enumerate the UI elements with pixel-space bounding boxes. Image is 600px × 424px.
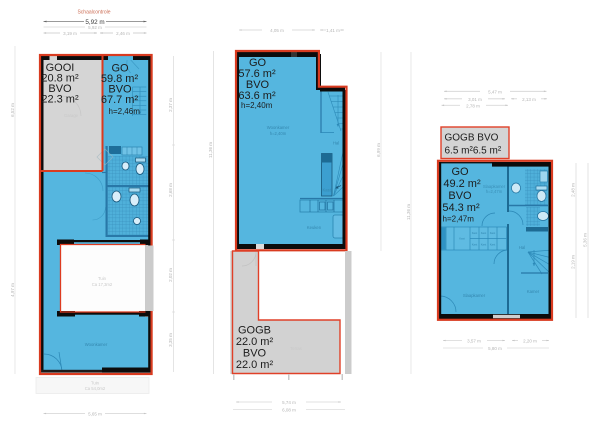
svg-text:Tuin: Tuin [91, 381, 100, 386]
svg-text:5,65 m: 5,65 m [88, 412, 102, 417]
svg-text:67.7 m²: 67.7 m² [101, 94, 139, 106]
svg-text:Ca 54,0m2: Ca 54,0m2 [85, 386, 106, 391]
svg-text:5,92 m: 5,92 m [88, 25, 102, 30]
svg-text:4,97 m: 4,97 m [10, 283, 15, 297]
svg-text:Schaalcontrole: Schaalcontrole [77, 10, 110, 16]
svg-text:5,47 m: 5,47 m [488, 89, 502, 94]
svg-text:22.0 m²: 22.0 m² [236, 336, 274, 348]
svg-text:GO: GO [451, 166, 469, 178]
svg-text:Garage: Garage [64, 113, 79, 118]
svg-text:Terras: Terras [290, 346, 302, 351]
svg-text:h=2,46m: h=2,46m [109, 107, 141, 116]
svg-text:Tuin: Tuin [98, 276, 107, 281]
svg-text:3,01 m: 3,01 m [468, 97, 482, 102]
svg-text:Slaapkamer: Slaapkamer [463, 293, 486, 298]
svg-text:2,48 m: 2,48 m [571, 183, 576, 197]
svg-text:5,80 m: 5,80 m [488, 346, 502, 351]
svg-text:Keuken: Keuken [307, 225, 322, 230]
svg-text:Kast: Kast [323, 188, 332, 193]
svg-text:2,13 m: 2,13 m [522, 97, 536, 102]
svg-text:Kast: Kast [472, 231, 478, 235]
svg-text:Kast: Kast [490, 243, 496, 247]
svg-text:Woonkamer: Woonkamer [85, 342, 108, 347]
svg-text:GOGB BVO: GOGB BVO [445, 133, 499, 144]
svg-text:h=2,40m: h=2,40m [241, 101, 273, 110]
svg-text:Ca 17,3m2: Ca 17,3m2 [92, 282, 113, 287]
svg-text:11,36 m: 11,36 m [406, 204, 411, 220]
svg-text:54.3 m²: 54.3 m² [442, 202, 480, 214]
svg-text:11,36 m: 11,36 m [208, 142, 213, 158]
svg-text:5,36 m: 5,36 m [583, 233, 588, 247]
svg-text:BVO: BVO [448, 190, 472, 202]
svg-text:Kast: Kast [481, 231, 487, 235]
svg-text:h=2,47m: h=2,47m [443, 215, 475, 224]
svg-text:2,37 m: 2,37 m [168, 98, 173, 112]
svg-text:6.5 m²6.5 m²: 6.5 m²6.5 m² [445, 146, 502, 157]
svg-text:6,08 m: 6,08 m [282, 408, 296, 413]
svg-text:3,19 m: 3,19 m [63, 31, 77, 36]
svg-text:49.2 m²: 49.2 m² [443, 178, 481, 190]
svg-text:6,52 m: 6,52 m [10, 103, 15, 117]
svg-text:3,57 m: 3,57 m [467, 339, 481, 344]
svg-text:Woonkamer: Woonkamer [267, 125, 290, 130]
svg-text:Kast: Kast [481, 243, 487, 247]
svg-text:Kast: Kast [490, 231, 496, 235]
svg-text:2,19 m: 2,19 m [571, 255, 576, 269]
svg-text:2,68 m: 2,68 m [168, 183, 173, 197]
svg-text:Kamer: Kamer [527, 289, 540, 294]
svg-text:Kast: Kast [459, 237, 465, 241]
svg-text:22.0 m²: 22.0 m² [236, 359, 274, 371]
svg-text:2,78 m: 2,78 m [466, 103, 480, 108]
svg-text:GOGB: GOGB [238, 325, 271, 337]
svg-text:h=2,40m: h=2,40m [270, 131, 287, 136]
svg-text:2,46 m: 2,46 m [116, 31, 130, 36]
svg-text:5,74 m: 5,74 m [282, 400, 296, 405]
svg-text:Hal: Hal [333, 141, 339, 146]
svg-text:22.3 m²: 22.3 m² [41, 94, 79, 106]
svg-text:BVO: BVO [243, 348, 267, 360]
svg-text:Hal: Hal [519, 245, 525, 250]
svg-text:4,05 m: 4,05 m [270, 28, 284, 33]
svg-text:h=2,47m: h=2,47m [486, 189, 503, 194]
svg-text:Kast: Kast [472, 243, 478, 247]
svg-text:6,99 m: 6,99 m [376, 143, 381, 157]
svg-text:2,20 m: 2,20 m [523, 339, 537, 344]
svg-text:3,35 m: 3,35 m [168, 333, 173, 347]
svg-text:1,41 m: 1,41 m [326, 28, 340, 33]
svg-text:2,02 m: 2,02 m [168, 268, 173, 282]
